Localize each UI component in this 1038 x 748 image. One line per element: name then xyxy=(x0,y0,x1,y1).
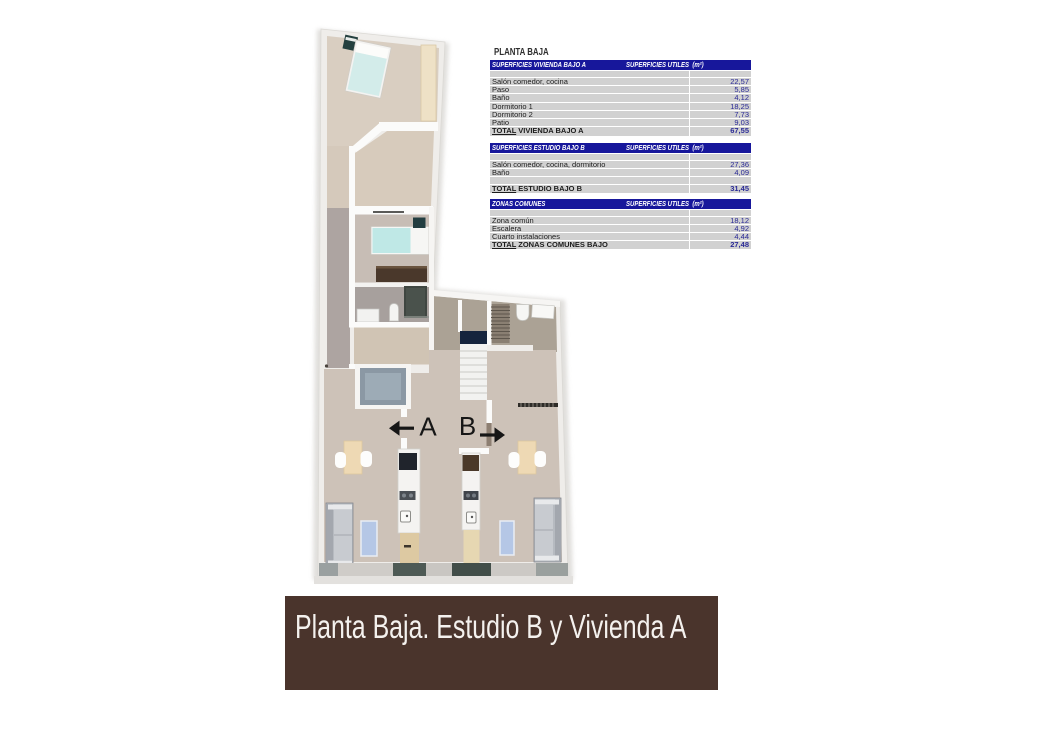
svg-text:A: A xyxy=(419,412,437,442)
svg-text:B: B xyxy=(459,411,476,441)
